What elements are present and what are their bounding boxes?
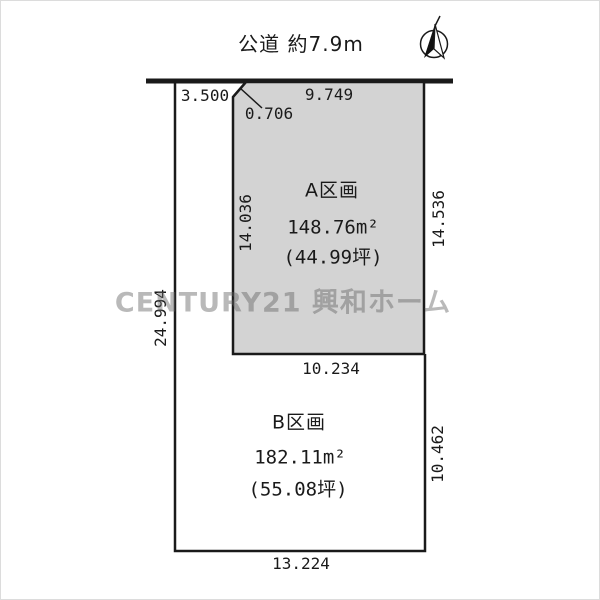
- north-compass-icon: [421, 16, 448, 58]
- road-label: 公道 約7.9m: [238, 34, 364, 54]
- dim-chamfer: 0.706: [245, 106, 293, 122]
- dim-a-bottom: 10.234: [302, 361, 360, 377]
- plot-b-area-tsubo: (55.08坪): [248, 481, 347, 500]
- compass-needle-light-half: [434, 24, 444, 58]
- dim-frontage-b-strip: 3.500: [181, 88, 229, 104]
- land-plot-diagram: 公道 約7.9m 3.500 9.749 0.706 14.036 14.536…: [0, 0, 600, 600]
- plot-a-name: A区画: [305, 182, 359, 201]
- dim-a-top: 9.749: [305, 87, 353, 103]
- dim-a-right: 14.536: [431, 190, 447, 248]
- compass-needle-dark-half: [424, 24, 435, 58]
- plot-a-area-tsubo: (44.99坪): [283, 249, 382, 268]
- dim-b-bottom: 13.224: [272, 556, 330, 572]
- plot-b-area-m2: 182.11m²: [254, 449, 346, 468]
- watermark: CENTURY21 興和ホーム: [115, 281, 451, 320]
- dim-b-right: 10.462: [430, 425, 446, 483]
- plot-b-name: B区画: [272, 414, 326, 433]
- plot-a-area-m2: 148.76m²: [287, 219, 379, 238]
- dim-a-left: 14.036: [238, 194, 254, 252]
